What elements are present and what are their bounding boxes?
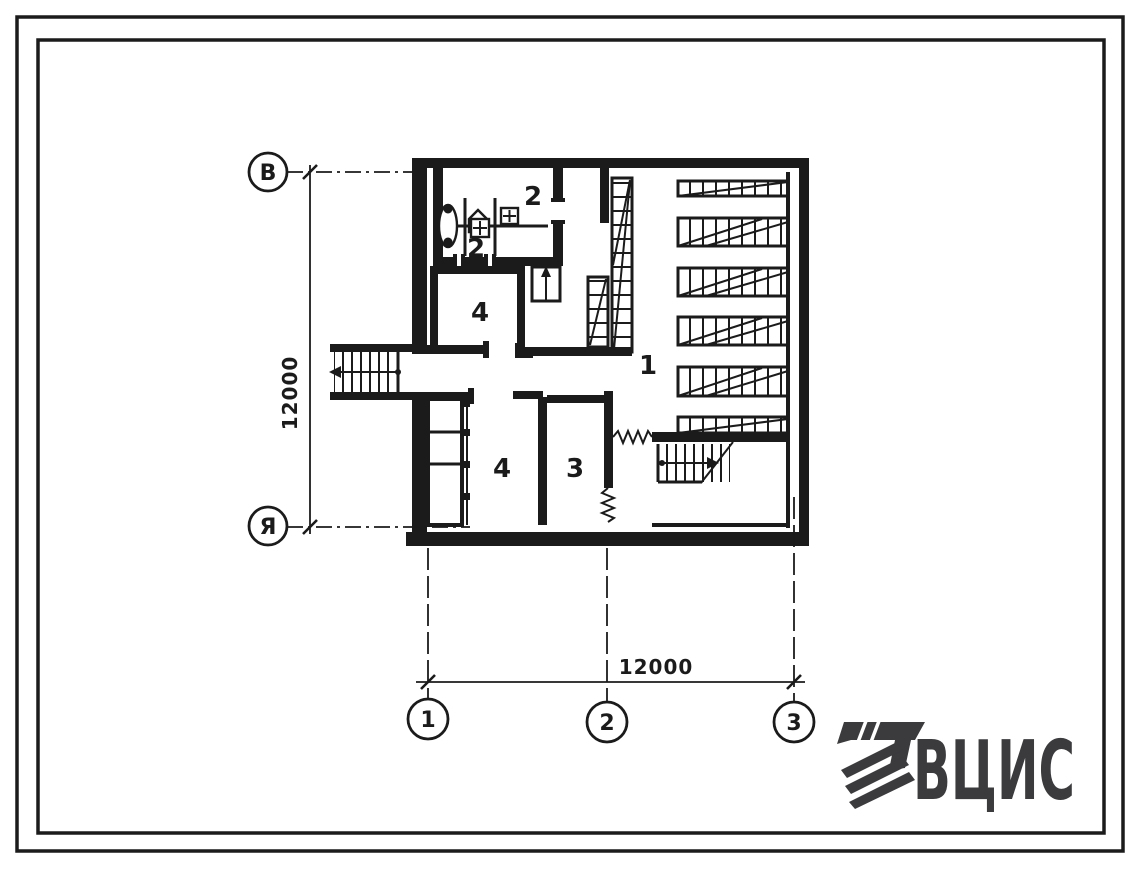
logo-icon — [837, 721, 925, 809]
axis-marker-col1: 1 — [408, 699, 448, 739]
axis-marker-col2: 2 — [587, 702, 627, 742]
wall-left-lower — [412, 395, 427, 535]
corridor-wall-upper-left — [412, 345, 488, 354]
wall-left-upper — [412, 158, 427, 352]
storage-rack-row — [678, 367, 788, 396]
sink-icon — [501, 208, 518, 224]
toilet-tank — [444, 205, 453, 214]
room4u-wall-left — [430, 266, 438, 354]
door-jamb — [515, 343, 521, 358]
room-label-4-upper: 4 — [471, 298, 489, 328]
door-jamb — [551, 220, 565, 224]
storage-rack-row — [678, 317, 788, 345]
toilet-bowl — [444, 238, 453, 247]
room4u-wall-top — [430, 266, 525, 274]
storage-rack-row — [678, 218, 788, 246]
door-jamb — [483, 341, 489, 358]
entrance-stair — [329, 344, 412, 400]
wall-bottom — [406, 532, 809, 546]
partition-zigzag-vertical — [602, 488, 614, 522]
sanitary-block: 2 2 — [433, 168, 565, 268]
partition-zigzag-horizontal — [613, 431, 652, 443]
bottom-right-area — [613, 431, 788, 525]
stair-rail-bottom — [330, 392, 412, 400]
axis-label-row-top: В — [260, 161, 277, 186]
axis-marker-col3: 3 — [774, 702, 814, 742]
storage-rack-vertical-tall — [612, 178, 632, 352]
room-label-3: 3 — [566, 454, 584, 484]
room3-wall-right — [604, 391, 613, 488]
dimension-vertical: 12000 — [278, 165, 317, 534]
axis-label-row-bottom: Я — [260, 515, 277, 540]
axis-marker-row-bottom: Я — [249, 507, 287, 545]
drawing-sheet: 2 2 4 — [0, 0, 1139, 869]
wall-top — [412, 158, 809, 168]
wall-stair-top — [652, 432, 788, 442]
storage-rack-row — [678, 181, 788, 196]
room-label-storage-hall: 1 — [639, 351, 657, 381]
door-jamb — [551, 198, 565, 202]
internal-stair-lower — [658, 442, 733, 483]
dimension-value-vertical: 12000 — [278, 356, 302, 431]
architectural-plan-drawing: 2 2 4 — [0, 0, 1139, 869]
internal-stair-upper — [532, 266, 560, 301]
door-jamb — [453, 254, 457, 268]
wall-right-outer — [799, 158, 809, 546]
storage-rack-row — [678, 417, 788, 433]
sanitary-wall-bottom-c — [493, 257, 563, 266]
sanitary-wall-bottom-a — [433, 257, 455, 266]
storage-hall: 1 — [639, 181, 788, 433]
logo-block: ВЦИС — [837, 721, 1075, 819]
door-jamb — [492, 254, 496, 268]
axis-marker-row-top: В — [249, 153, 287, 191]
dimension-value-horizontal: 12000 — [619, 655, 694, 679]
room3-wall-top — [547, 395, 605, 403]
wall-room4-room3 — [538, 397, 547, 525]
axis-label-col3: 3 — [786, 711, 801, 736]
sanitary-wall-right-a — [553, 168, 563, 202]
storage-rack-row — [678, 268, 788, 296]
stair-rail-top — [330, 344, 412, 352]
room-label-sanitary-lower: 2 — [467, 234, 485, 264]
corridor-walls — [412, 341, 632, 404]
axis-label-col2: 2 — [599, 711, 614, 736]
door-jamb — [461, 254, 465, 268]
lower-rooms: 4 3 — [428, 391, 614, 525]
axis-label-col1: 1 — [420, 708, 435, 733]
storage-rack-vertical-small — [588, 277, 608, 347]
wall-stub — [600, 168, 609, 223]
room-label-sanitary-upper: 2 — [524, 182, 542, 212]
room-label-4-lower: 4 — [493, 454, 511, 484]
closet-cabinets — [428, 397, 470, 525]
logo-text: ВЦИС — [913, 724, 1075, 819]
central-racks — [588, 168, 632, 352]
stair-direction-dot — [395, 369, 401, 375]
dimension-horizontal: 12000 — [416, 655, 805, 689]
